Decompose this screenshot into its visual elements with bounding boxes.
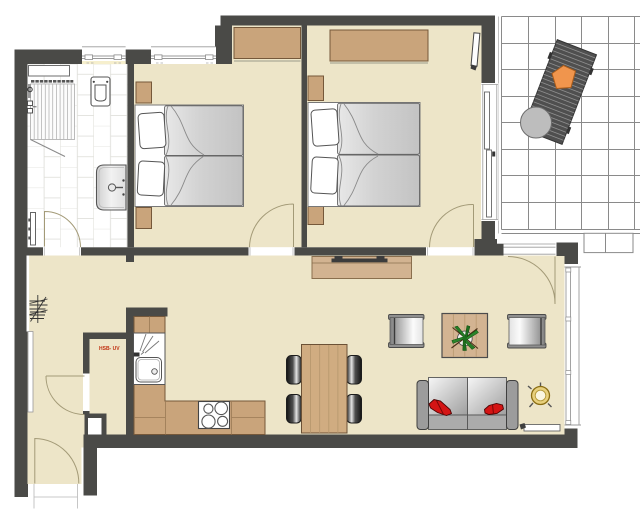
svg-text:HSB- UV: HSB- UV <box>99 346 120 352</box>
